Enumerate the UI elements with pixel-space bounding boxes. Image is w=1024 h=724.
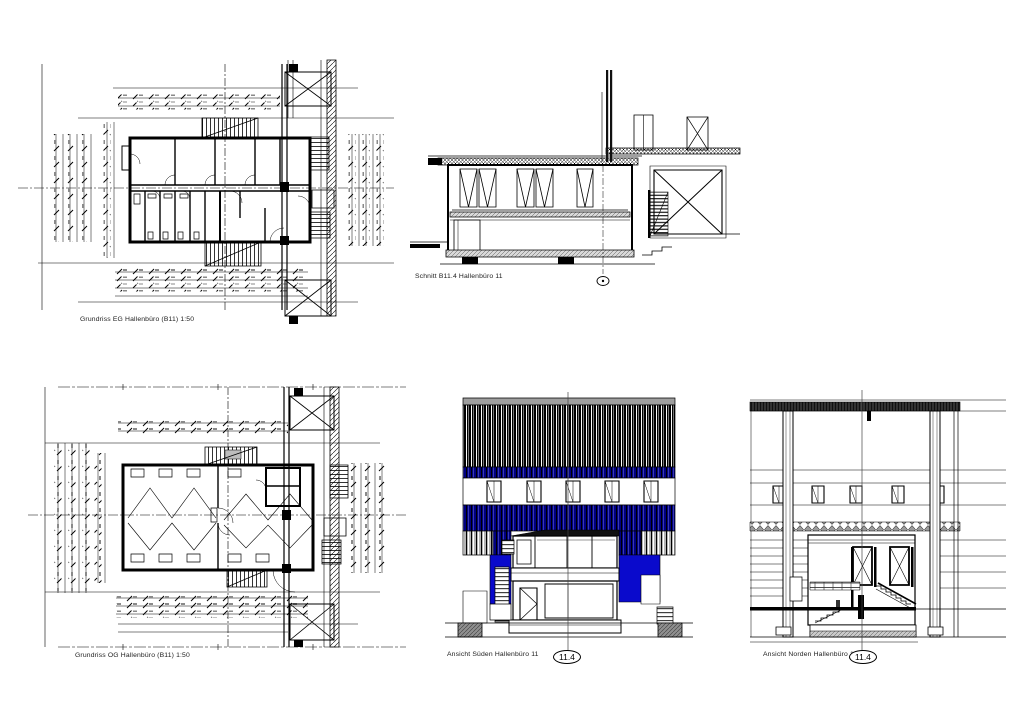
section-axis-marker [597, 165, 609, 286]
elevation-south-caption: Ansicht Süden Hallenbüro 11 [447, 651, 539, 658]
north-window-band [773, 486, 944, 503]
section-upper-windows [452, 169, 628, 210]
eg-hall-structure [280, 60, 336, 324]
elevation-north-caption: Ansicht Norden Hallenbüro 11 [763, 651, 857, 658]
drawing-sheet: Grundriss EG Hallenbüro (B11) 1:50 [0, 0, 1024, 724]
elevation-south-graphic [445, 392, 693, 676]
eg-staircases [202, 118, 334, 266]
elevation-south-drawing: Ansicht Süden Hallenbüro 11 11.4 [445, 392, 693, 676]
section-right-structure [634, 115, 740, 255]
section-roof-slabs [428, 148, 740, 165]
section-graphic [410, 62, 742, 294]
elevation-north-drawing: Ansicht Norden Hallenbüro 11 11.4 [748, 390, 1010, 676]
section-drawing: Schnitt B11.4 Hallenbüro 11 [410, 62, 742, 294]
eg-sanitary-fixtures [134, 194, 199, 239]
north-diamond-band [750, 522, 960, 531]
south-office-box [509, 530, 621, 633]
south-axis-marker: 11.4 [553, 650, 581, 664]
elevation-north-graphic [748, 390, 1010, 676]
plan-eg-caption: Grundriss EG Hallenbüro (B11) 1:50 [80, 316, 194, 323]
north-office-box [790, 535, 916, 625]
section-office-box [446, 165, 634, 264]
plan-eg-drawing: Grundriss EG Hallenbüro (B11) 1:50 [18, 58, 410, 348]
section-caption: Schnitt B11.4 Hallenbüro 11 [415, 273, 503, 280]
plan-og-drawing: Grundriss OG Hallenbüro (B11) 1:50 [28, 378, 410, 672]
section-hall-column [602, 70, 612, 162]
plan-og-graphic [28, 378, 410, 672]
plan-eg-graphic [18, 58, 410, 348]
north-axis-marker: 11.4 [849, 650, 877, 664]
plan-og-caption: Grundriss OG Hallenbüro (B11) 1:50 [75, 652, 190, 659]
